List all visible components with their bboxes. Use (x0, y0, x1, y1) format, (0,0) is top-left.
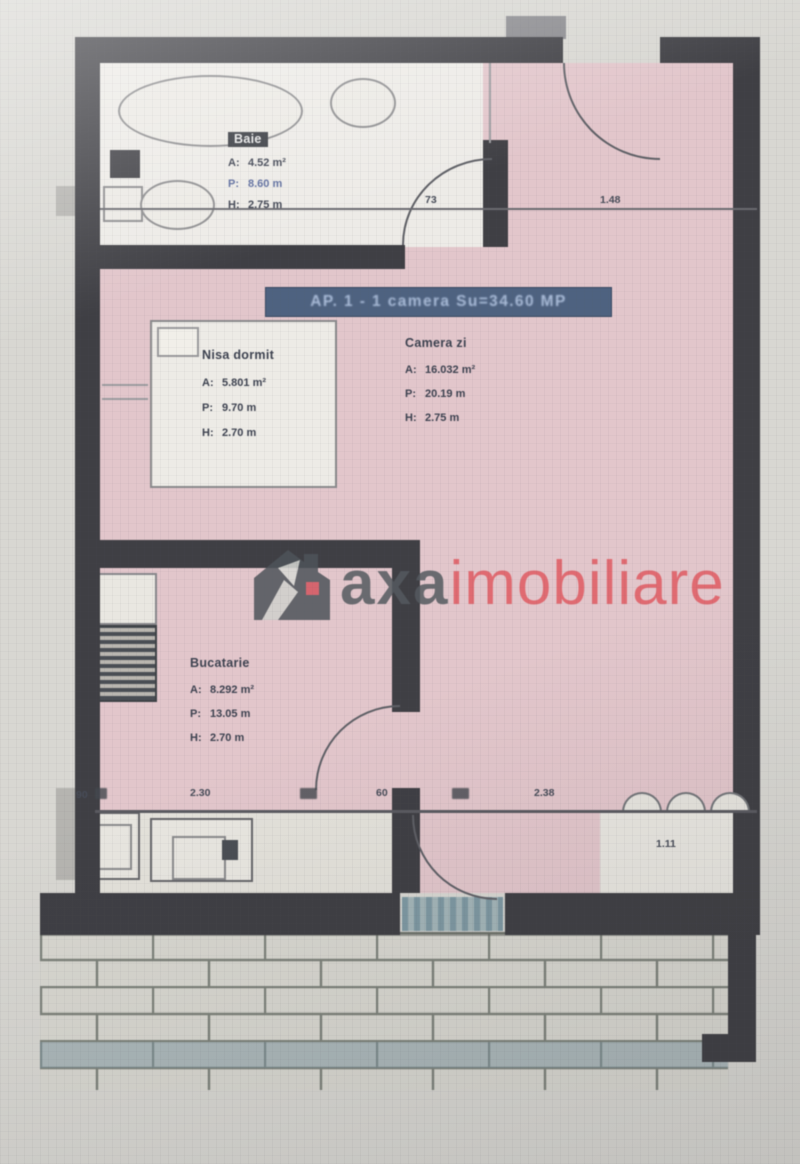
house-logo-icon (248, 546, 336, 622)
terrace-bricks (40, 932, 728, 1090)
room-height: H: 2.75 m (228, 199, 348, 211)
wall-terrace-foot (702, 1034, 756, 1062)
dim-label: 73 (425, 194, 437, 206)
room-label-kitchen: Bucatarie A: 8.292 m² P: 13.05 m H: 2.70… (190, 654, 310, 744)
dim-label: 1.11 (656, 838, 676, 850)
room-area: A: 5.801 m² (202, 377, 332, 389)
room-height: H: 2.75 m (405, 412, 545, 424)
room-name: Bucatarie (190, 656, 250, 670)
room-area: A: 8.292 m² (190, 684, 310, 696)
brand-imobiliare: imobiliare (449, 553, 724, 615)
exterior-pillar-top (506, 16, 566, 39)
bathroom-partition-line (489, 63, 491, 143)
room-height: H: 2.70 m (190, 732, 310, 744)
stove-sink-unit (90, 625, 157, 702)
wall-left (75, 37, 100, 893)
room-area: A: 16.032 m² (405, 364, 545, 376)
exterior-pillar-left-lower (56, 788, 76, 880)
floor-plan-photo: 73 1.48 90 2.30 60 2.38 1.11 (0, 0, 800, 1164)
room-area: A: 4.52 m² (228, 157, 348, 169)
cabinet-door (172, 836, 226, 880)
dimension-tick (300, 788, 317, 799)
exterior-pillar-left-upper (56, 186, 76, 216)
washing-machine-door (95, 824, 132, 870)
room-label-bedroom: Nisa dormit A: 5.801 m² P: 9.70 m H: 2.7… (202, 346, 332, 439)
terrace-glass-door (402, 897, 503, 931)
wall-top-left (75, 37, 563, 63)
apartment-info-text: AP. 1 - 1 camera Su=34.60 MP (310, 293, 566, 311)
cabinet-detail (222, 840, 238, 860)
wall-bottom-right (505, 893, 760, 935)
dim-label: 60 (376, 787, 388, 799)
wall-toilet-niche (110, 150, 140, 178)
room-perimeter: P: 8.60 m (228, 178, 348, 190)
dimension-tick (452, 788, 469, 799)
dim-label: 90 (76, 789, 88, 801)
room-perimeter: P: 9.70 m (202, 402, 332, 414)
dim-label: 2.30 (190, 787, 210, 799)
room-height: H: 2.70 m (202, 427, 332, 439)
sink (330, 78, 396, 128)
dimension-line-top (100, 208, 757, 210)
toilet-tank (103, 186, 143, 222)
dimension-tick (95, 788, 107, 799)
balcony-strip-right (600, 813, 733, 893)
agency-watermark: axa imobiliare (248, 542, 778, 626)
wall-bottom-left (40, 893, 400, 935)
kitchen-counter (90, 573, 157, 625)
room-name: Baie (228, 132, 268, 147)
floor-plan-drawing: 73 1.48 90 2.30 60 2.38 1.11 (0, 0, 800, 1164)
dimension-line-bottom (95, 810, 757, 813)
apartment-info-banner: AP. 1 - 1 camera Su=34.60 MP (265, 287, 612, 317)
room-name: Nisa dormit (202, 348, 274, 362)
wall-right (733, 37, 760, 893)
radiator-lines (102, 384, 148, 400)
room-perimeter: P: 20.19 m (405, 388, 545, 400)
pillow (157, 327, 199, 357)
toilet-bowl (140, 180, 215, 230)
brand-axa: axa (340, 553, 449, 615)
brick-pattern (40, 932, 728, 1090)
room-name: Camera zi (405, 336, 467, 350)
room-label-bathroom: Baie A: 4.52 m² P: 8.60 m H: 2.75 m (228, 130, 348, 211)
dim-label: 2.38 (534, 787, 554, 799)
dim-label: 1.48 (600, 194, 620, 206)
room-label-living: Camera zi A: 16.032 m² P: 20.19 m H: 2.7… (405, 334, 545, 424)
teal-band (40, 1042, 728, 1068)
wall-bathroom-bottom (100, 245, 405, 269)
room-perimeter: P: 13.05 m (190, 708, 310, 720)
